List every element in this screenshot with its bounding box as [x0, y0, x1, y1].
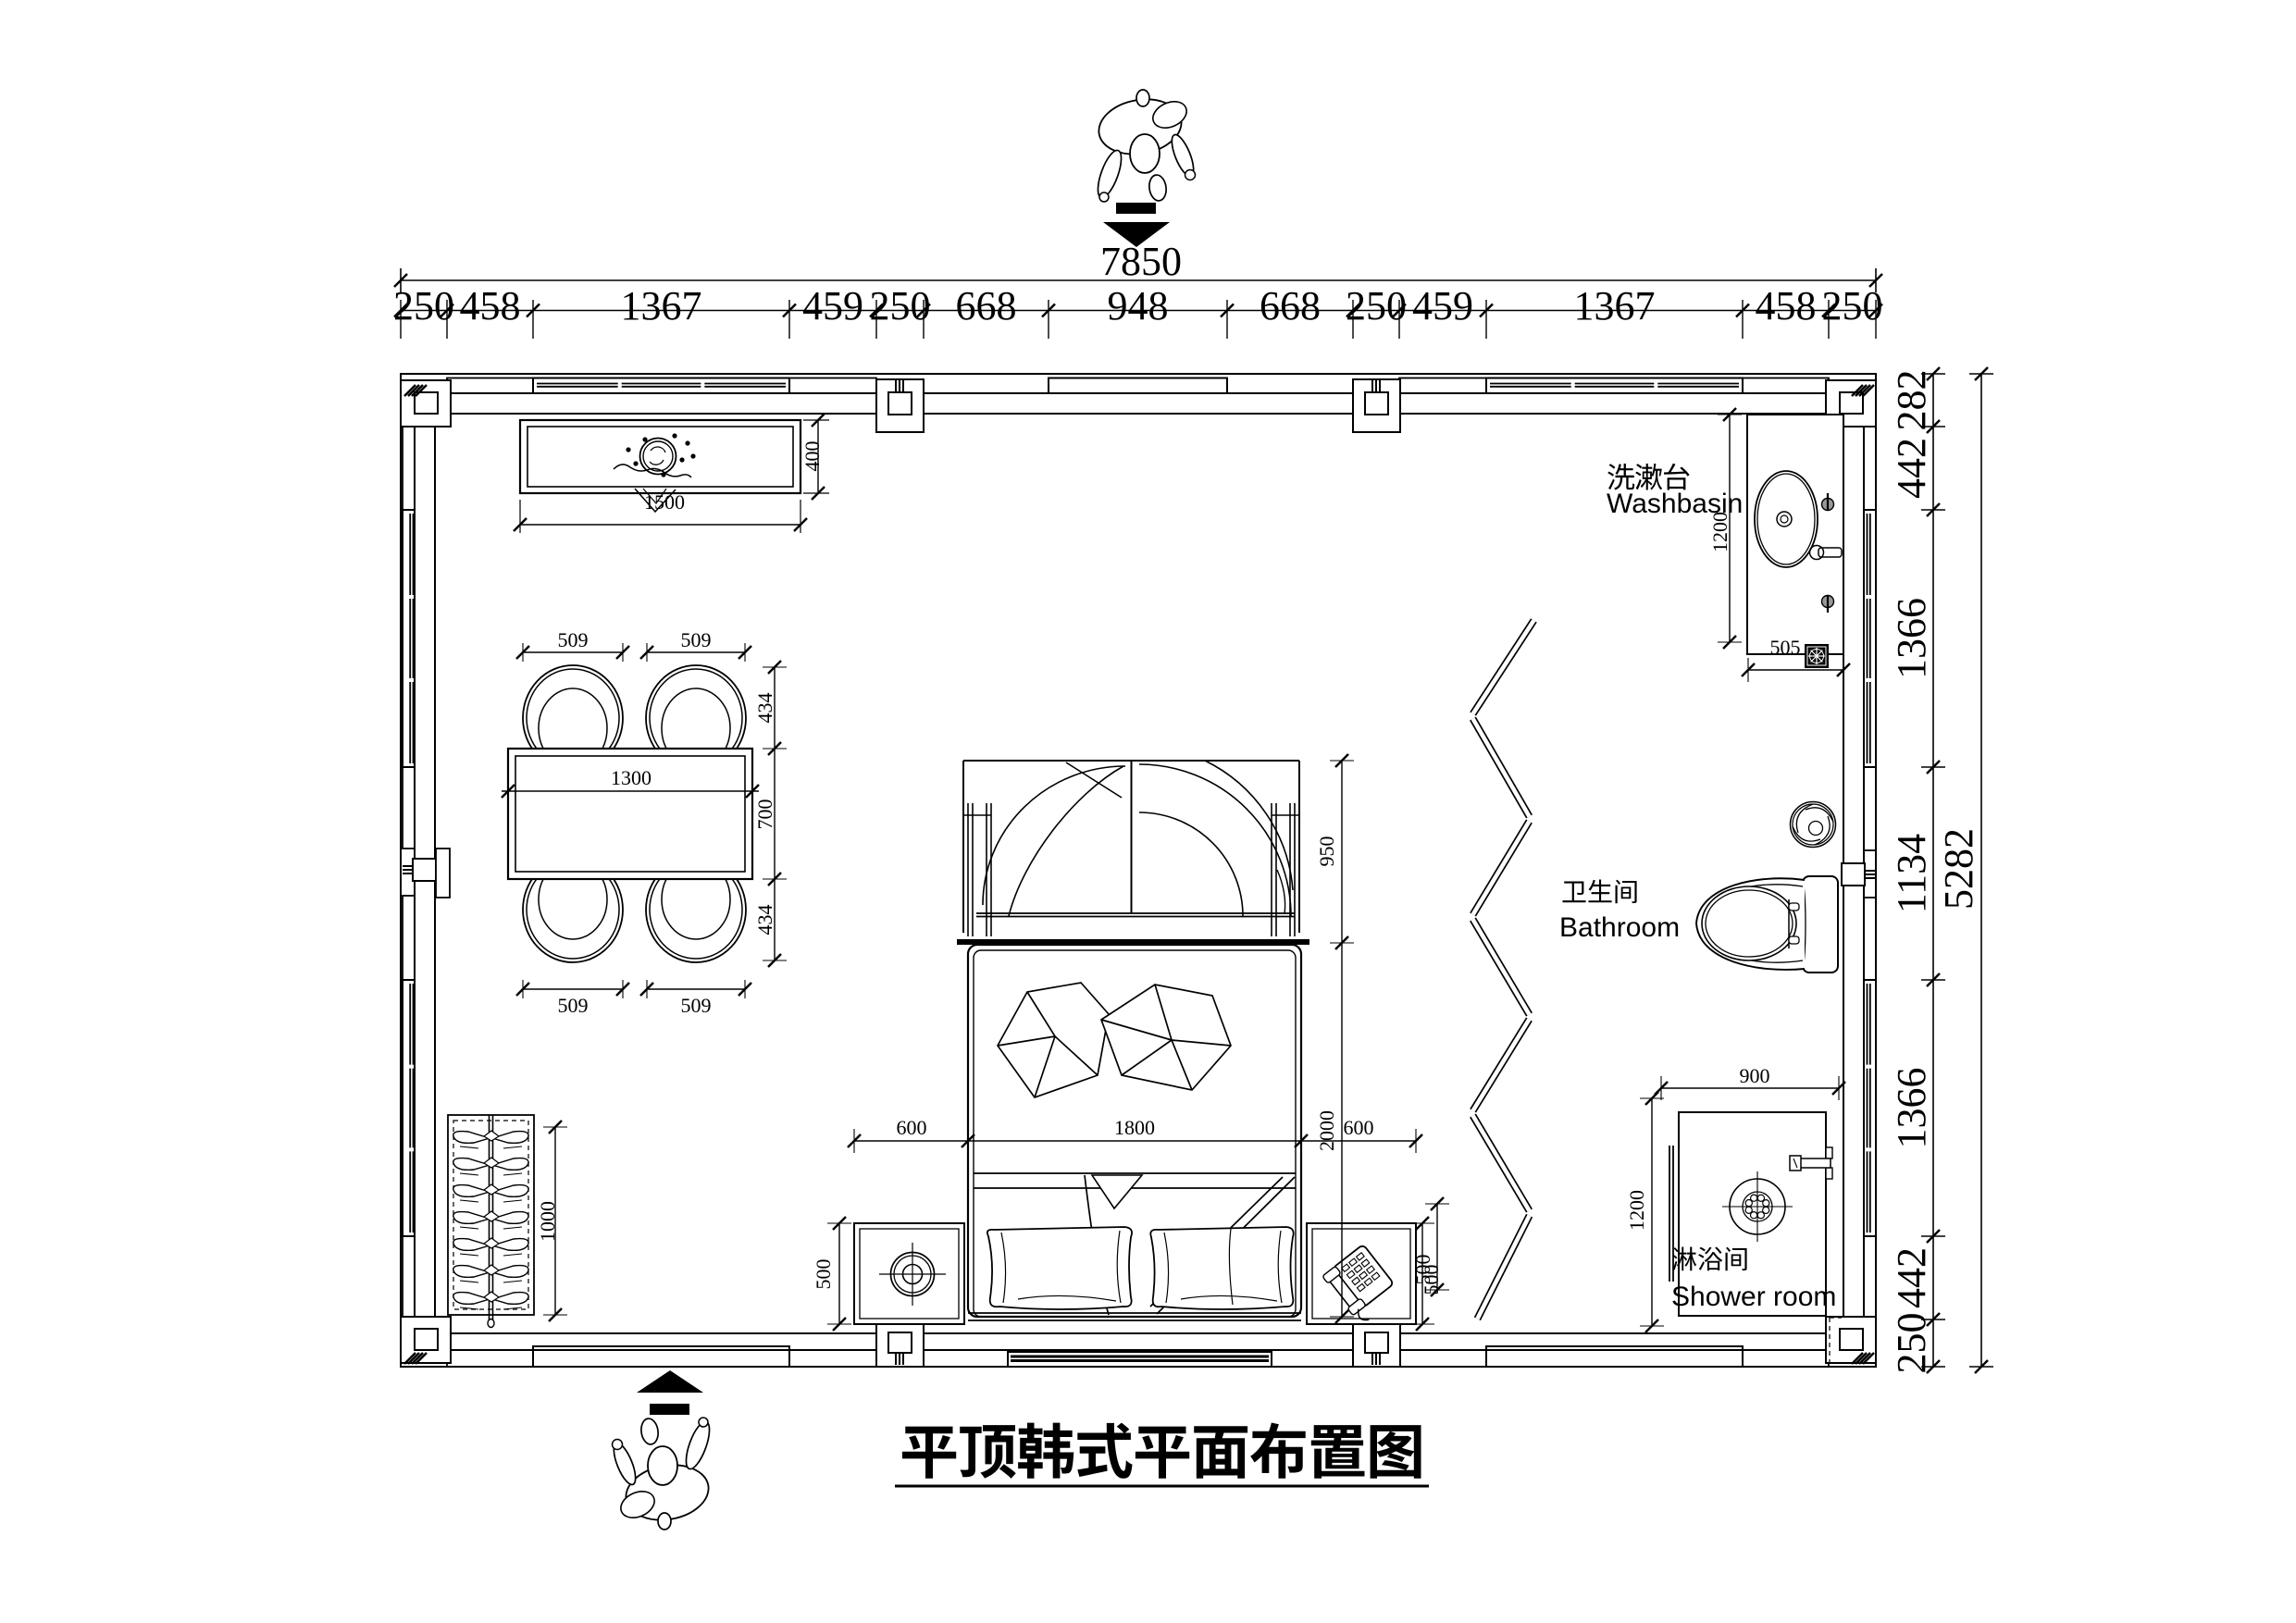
- svg-text:1200: 1200: [1625, 1190, 1648, 1231]
- svg-text:1367: 1367: [621, 283, 702, 328]
- svg-text:Shower room: Shower room: [1671, 1282, 1836, 1312]
- svg-text:459: 459: [1412, 283, 1473, 328]
- svg-text:1366: 1366: [1889, 1068, 1934, 1149]
- svg-text:282: 282: [1889, 370, 1934, 431]
- svg-text:434: 434: [753, 693, 776, 724]
- svg-text:1366: 1366: [1889, 598, 1934, 679]
- svg-text:600: 600: [897, 1116, 927, 1139]
- svg-text:900: 900: [1740, 1064, 1770, 1087]
- svg-text:Bathroom: Bathroom: [1559, 912, 1680, 943]
- svg-text:7850: 7850: [1100, 239, 1182, 284]
- svg-text:250: 250: [1822, 283, 1883, 328]
- svg-text:1500: 1500: [644, 490, 685, 514]
- svg-text:505: 505: [1770, 636, 1801, 659]
- svg-text:442: 442: [1889, 1247, 1934, 1308]
- svg-text:458: 458: [460, 283, 521, 328]
- svg-text:458: 458: [1756, 283, 1817, 328]
- svg-text:2000: 2000: [1315, 1110, 1338, 1151]
- svg-text:1134: 1134: [1889, 834, 1934, 913]
- svg-text:509: 509: [558, 628, 589, 651]
- svg-text:459: 459: [802, 283, 863, 328]
- svg-text:442: 442: [1889, 438, 1934, 499]
- svg-text:434: 434: [753, 905, 776, 935]
- svg-text:1800: 1800: [1114, 1116, 1155, 1139]
- svg-text:1300: 1300: [611, 766, 652, 789]
- svg-text:950: 950: [1315, 836, 1338, 867]
- svg-text:509: 509: [681, 628, 712, 651]
- svg-text:250: 250: [1889, 1313, 1934, 1374]
- svg-text:509: 509: [681, 994, 712, 1017]
- svg-text:948: 948: [1108, 283, 1169, 328]
- svg-text:Washbasin: Washbasin: [1607, 489, 1743, 519]
- svg-text:600: 600: [1344, 1116, 1374, 1139]
- svg-text:668: 668: [1260, 283, 1321, 328]
- svg-text:668: 668: [956, 283, 1017, 328]
- svg-text:1367: 1367: [1574, 283, 1656, 328]
- svg-text:500: 500: [1411, 1255, 1434, 1285]
- svg-text:700: 700: [753, 799, 776, 830]
- svg-text:500: 500: [812, 1259, 835, 1290]
- svg-text:250: 250: [1346, 283, 1407, 328]
- svg-text:509: 509: [558, 994, 589, 1017]
- svg-text:1000: 1000: [536, 1201, 559, 1242]
- svg-text:400: 400: [800, 441, 824, 472]
- svg-text:5282: 5282: [1936, 828, 1981, 910]
- svg-text:250: 250: [393, 283, 454, 328]
- svg-text:250: 250: [870, 283, 931, 328]
